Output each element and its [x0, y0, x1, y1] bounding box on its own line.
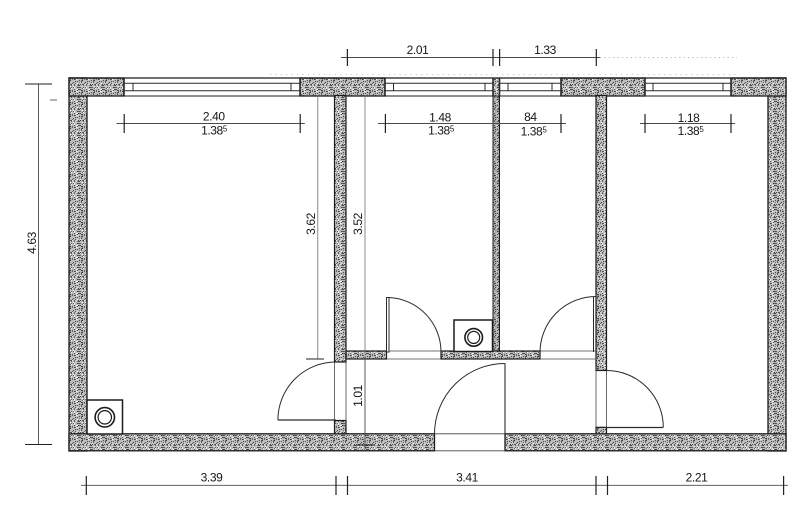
svg-text:2.40: 2.40	[203, 110, 225, 124]
svg-text:1.33: 1.33	[534, 43, 556, 57]
svg-text:2.21: 2.21	[686, 471, 708, 485]
svg-text:3.62: 3.62	[304, 212, 318, 234]
svg-text:1.48: 1.48	[429, 111, 451, 125]
svg-text:2.01: 2.01	[407, 43, 429, 57]
svg-text:3.52: 3.52	[351, 212, 365, 234]
svg-text:1.01: 1.01	[351, 384, 365, 406]
svg-text:84: 84	[524, 110, 537, 124]
svg-text:3.39: 3.39	[201, 471, 223, 485]
svg-text:1.18: 1.18	[678, 111, 700, 125]
svg-text:3.41: 3.41	[456, 471, 478, 485]
svg-text:4.63: 4.63	[25, 231, 39, 253]
